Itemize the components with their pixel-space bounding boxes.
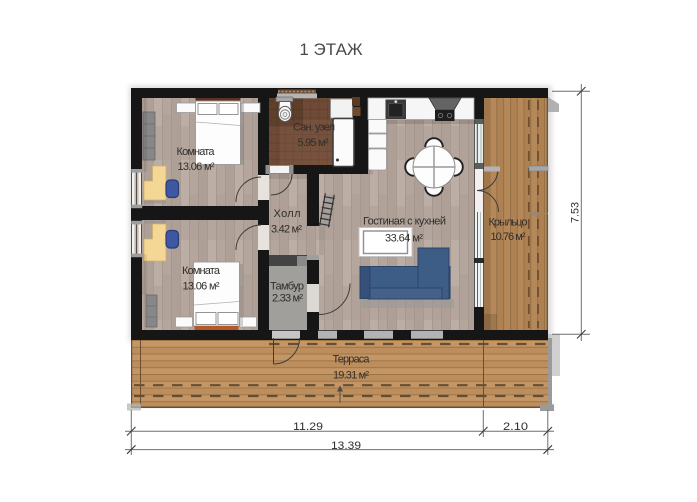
svg-text:Тамбур: Тамбур: [270, 281, 304, 293]
svg-text:2.33 м²: 2.33 м²: [272, 293, 303, 305]
svg-text:Сан. узел: Сан. узел: [293, 122, 335, 134]
svg-text:7.53: 7.53: [570, 202, 582, 223]
svg-text:5.95 м²: 5.95 м²: [298, 137, 329, 149]
svg-text:Крыльцо: Крыльцо: [489, 217, 528, 229]
svg-text:11.29: 11.29: [293, 421, 323, 433]
svg-text:33.64 м²: 33.64 м²: [385, 233, 423, 245]
svg-text:10.76 м²: 10.76 м²: [491, 231, 526, 243]
svg-text:19.31 м²: 19.31 м²: [333, 370, 369, 382]
svg-text:1 ЭТАЖ: 1 ЭТАЖ: [299, 40, 363, 59]
svg-text:Терраса: Терраса: [333, 354, 371, 366]
svg-text:Комната: Комната: [182, 265, 221, 277]
svg-text:Комната: Комната: [177, 146, 216, 158]
svg-text:2.10: 2.10: [503, 421, 528, 433]
svg-text:3.42 м²: 3.42 м²: [271, 224, 302, 236]
svg-text:Гостиная с кухней: Гостиная с кухней: [363, 216, 446, 228]
svg-text:13.06 м²: 13.06 м²: [178, 161, 215, 173]
svg-text:Холл: Холл: [274, 208, 301, 220]
svg-text:13.39: 13.39: [331, 440, 361, 452]
svg-text:13.06 м²: 13.06 м²: [183, 281, 220, 293]
